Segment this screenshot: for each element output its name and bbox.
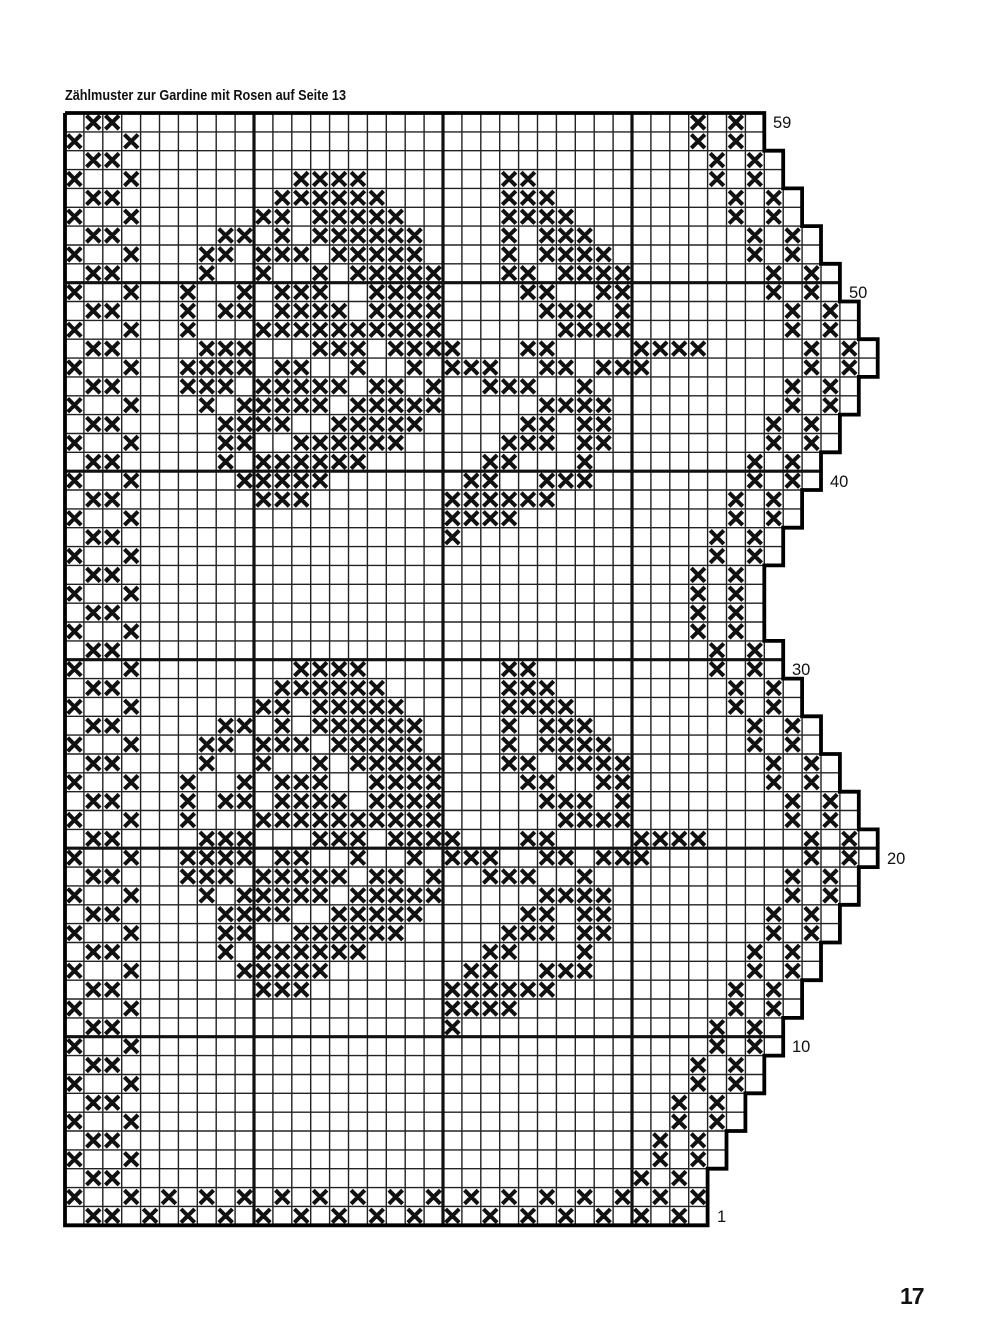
svg-text:59: 59 [773,114,791,132]
svg-text:1: 1 [717,1208,726,1226]
svg-text:50: 50 [849,284,867,302]
svg-text:40: 40 [830,473,848,491]
svg-text:20: 20 [887,850,905,868]
svg-text:30: 30 [792,661,810,679]
svg-text:10: 10 [792,1038,810,1056]
